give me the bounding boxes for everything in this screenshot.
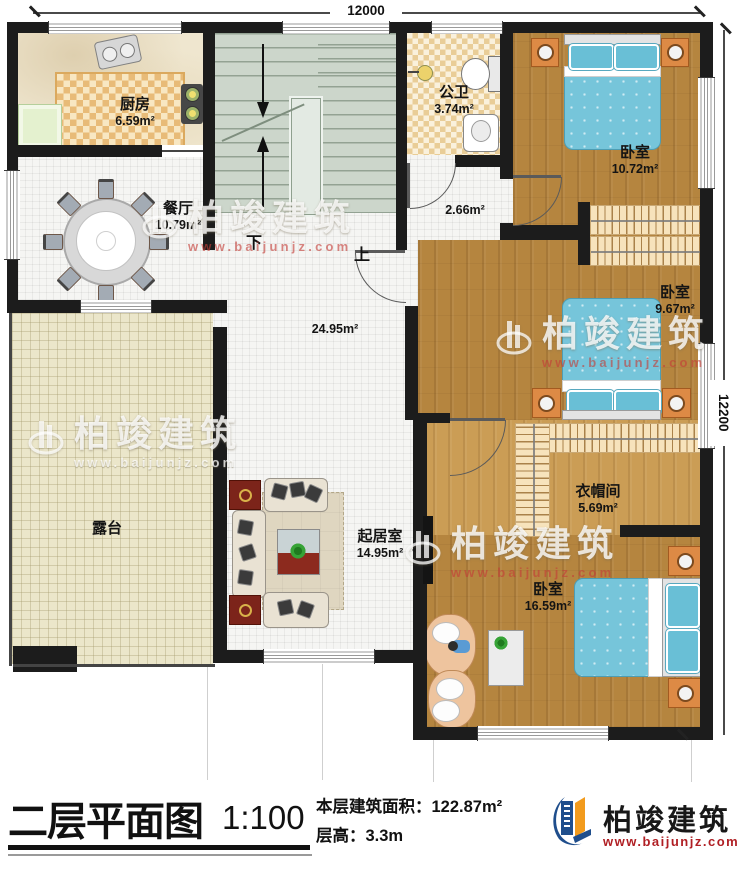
bedroom-mid-area: 9.67m² <box>633 302 717 317</box>
title-underline <box>8 845 310 850</box>
terrace-floor <box>12 313 213 664</box>
dimension-tick <box>720 22 732 34</box>
wall <box>418 413 450 423</box>
hall-area: 24.95m² <box>293 322 377 337</box>
bathroom-label: 公卫 3.74m² <box>415 84 493 117</box>
bedroom-master-name: 卧室 <box>503 581 593 599</box>
kitchen-area: 6.59m² <box>95 114 175 129</box>
wardrobe <box>590 205 702 235</box>
window <box>4 170 20 260</box>
eave-line <box>322 663 323 780</box>
right-dimension-label: 12200 <box>710 380 736 446</box>
stair-steps <box>318 44 396 213</box>
living-name: 起居室 <box>338 528 422 546</box>
bed-pillow <box>666 584 700 628</box>
stair-arrow-up-icon <box>257 136 269 152</box>
wall <box>405 306 418 420</box>
floor-area-line: 本层建筑面积：122.87m² <box>316 793 502 817</box>
corridor-label: 2.66m² <box>425 203 505 218</box>
closet-label: 衣帽间 5.69m² <box>548 483 648 516</box>
eave-line <box>433 740 434 782</box>
living-area: 14.95m² <box>338 546 422 561</box>
bedroom-master-area: 16.59m² <box>503 599 593 614</box>
end-table <box>229 595 261 625</box>
terrace-name: 露台 <box>75 520 139 538</box>
company-logo-icon <box>545 791 597 856</box>
stair-arrow-stem <box>262 44 264 102</box>
window <box>48 21 182 34</box>
wardrobe <box>515 423 550 537</box>
floor-height-label: 层高： <box>316 827 366 845</box>
living-label: 起居室 14.95m² <box>338 528 422 561</box>
bed-headboard <box>562 410 661 420</box>
door-leaf <box>407 163 410 208</box>
stove-icon <box>181 84 203 124</box>
chair <box>149 234 169 250</box>
window <box>477 726 609 741</box>
title-underline-thin <box>8 854 312 856</box>
floor-height-line: 层高：3.3m <box>316 822 403 846</box>
floor-height-value: 3.3m <box>366 827 404 845</box>
stair-down-label: 下 <box>246 229 262 253</box>
stair-steps <box>215 100 291 213</box>
company-logo-url: www.baijunjz.com <box>603 834 739 849</box>
hall-label: 24.95m² <box>293 322 377 337</box>
bed-pillow <box>569 44 614 70</box>
wall <box>578 202 590 265</box>
scale-label: 1:100 <box>222 799 305 837</box>
kitchen-door-threshold <box>162 150 203 152</box>
kitchen-name: 厨房 <box>95 96 175 114</box>
floor-plan-page: 12000 12200 下 上 <box>0 0 750 869</box>
bedroom-mid-name: 卧室 <box>633 284 717 302</box>
sofa-cushion <box>432 700 460 722</box>
dining-area: 10.79m² <box>138 218 218 233</box>
bedroom-mid-label: 卧室 9.67m² <box>633 284 717 317</box>
stair-arrow-down-icon <box>257 102 269 118</box>
bedroom-top-area: 10.72m² <box>590 162 680 177</box>
terrace-label: 露台 <box>75 520 139 538</box>
dining-label: 餐厅 10.79m² <box>138 200 218 233</box>
wardrobe <box>548 423 702 453</box>
plant-icon <box>290 543 306 559</box>
door-leaf <box>513 175 561 178</box>
wall <box>620 525 713 537</box>
nightstand <box>662 388 691 418</box>
wall <box>213 327 227 663</box>
wall <box>500 33 513 179</box>
person-head <box>448 641 458 651</box>
nightstand <box>668 678 702 708</box>
top-dimension-label: 12000 <box>330 2 402 20</box>
floor-area-value: 122.87m² <box>432 798 503 816</box>
terrace-railing <box>13 664 215 667</box>
sofa-cushion <box>436 678 464 700</box>
wall <box>7 300 80 313</box>
wall <box>150 300 227 313</box>
wall <box>7 22 18 313</box>
wall <box>13 646 77 672</box>
company-logo-text: 柏竣建筑 <box>603 797 731 839</box>
eave-line <box>207 663 208 780</box>
bathroom-name: 公卫 <box>415 84 493 102</box>
closet-area: 5.69m² <box>548 501 648 516</box>
corridor-area: 2.66m² <box>425 203 505 218</box>
wall <box>500 225 580 240</box>
bathroom-sink-icon <box>463 114 499 152</box>
page-title: 二层平面图 <box>8 789 203 847</box>
nightstand <box>668 546 702 576</box>
wardrobe <box>590 236 702 266</box>
plant-icon <box>494 636 508 650</box>
sofa-pillow <box>237 519 254 536</box>
floor-area-label: 本层建筑面积： <box>316 798 432 816</box>
shower-head-icon <box>417 65 433 81</box>
bedroom-top-name: 卧室 <box>590 144 680 162</box>
door-leaf <box>450 418 505 421</box>
chair <box>43 234 63 250</box>
bedroom-master-label: 卧室 16.59m² <box>503 581 593 614</box>
wall <box>396 33 407 250</box>
shower-arm <box>408 71 419 73</box>
nightstand <box>531 38 559 67</box>
kitchen-counter-board <box>18 104 62 148</box>
bathroom-area: 3.74m² <box>415 102 493 117</box>
wall <box>7 145 162 157</box>
kitchen-label: 厨房 6.59m² <box>95 96 175 129</box>
dining-table-center <box>96 231 116 251</box>
tv-icon <box>423 516 433 584</box>
terrace-door <box>80 300 152 313</box>
window <box>698 77 715 189</box>
stair-arrow-stem <box>262 152 264 207</box>
eave-line <box>691 740 692 782</box>
chair <box>98 179 114 199</box>
stair-up-label: 上 <box>354 241 370 265</box>
closet-name: 衣帽间 <box>548 483 648 501</box>
nightstand <box>532 388 561 418</box>
bed-pillow <box>614 44 659 70</box>
sofa-pillow <box>277 599 295 617</box>
dining-name: 餐厅 <box>138 200 218 218</box>
terrace-railing <box>9 313 12 666</box>
bed-pillow <box>666 629 700 673</box>
end-table <box>229 480 261 510</box>
nightstand <box>661 38 689 67</box>
stair-void <box>291 98 321 215</box>
bedroom-top-label: 卧室 10.72m² <box>590 144 680 177</box>
window <box>263 649 375 664</box>
window <box>282 21 390 34</box>
window <box>431 21 503 34</box>
bed-quilt <box>564 74 661 150</box>
sofa-pillow <box>237 569 254 586</box>
